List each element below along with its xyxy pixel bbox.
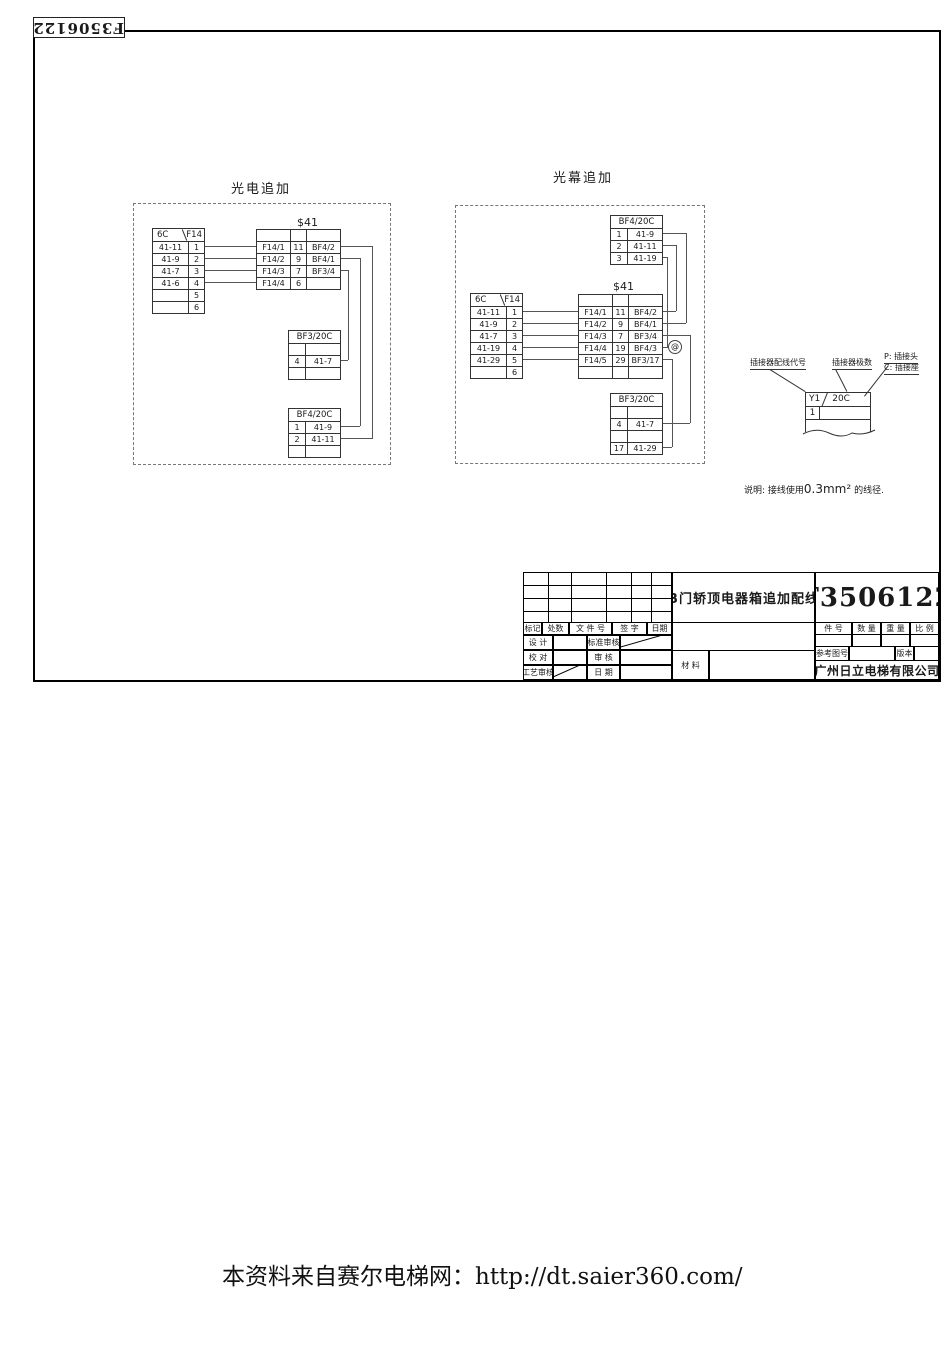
connector-table-6c-f14: 6C F14 41-11141-9241-7341-6456 (152, 228, 205, 314)
tb-label-material: 材 料 (672, 650, 709, 680)
table-cell: F14/3 (257, 266, 291, 278)
tb-label-date2: 日 期 (587, 665, 620, 680)
table-row: F14/29BF4/1 (257, 254, 341, 266)
table-cell (613, 295, 629, 307)
table-cell: 4 (611, 419, 628, 431)
revision-grid (523, 572, 672, 623)
table-cell: 4 (289, 356, 306, 368)
corner-drawing-number: F3506122 (33, 17, 125, 38)
connector-table-header: 6C F14 (153, 229, 205, 242)
cable-name: F14 (186, 229, 202, 241)
connector-table-title: BF3/20C (289, 331, 341, 344)
table-cell: 2 (611, 241, 628, 253)
table-row: F14/29BF4/1 (579, 319, 663, 331)
note-prefix: 说明: 接线使用 (744, 486, 804, 496)
table-cell: 41-7 (306, 356, 341, 368)
tb-label-version: 版本 (895, 646, 914, 661)
light-curtain-diagram-title: 光幕追加 (553, 167, 613, 186)
table-row (611, 431, 663, 443)
wire-segment (690, 335, 691, 423)
tb-cell-diagonal (620, 635, 672, 650)
table-cell: 41-7 (153, 266, 189, 278)
table-cell: 41-7 (628, 419, 663, 431)
junction-marker: @ (668, 340, 682, 354)
connector-table-bf4: BF4/20C 141-9241-11341-19 (610, 215, 663, 265)
table-cell: 19 (613, 343, 629, 355)
table-cell: F14/1 (257, 242, 291, 254)
table-cell: 5 (189, 290, 205, 302)
tb-label-count: 处数 (542, 622, 569, 635)
table-cell (306, 344, 341, 356)
wire-segment (522, 359, 578, 360)
cable-name: F14 (504, 294, 520, 306)
table-cell (289, 446, 306, 458)
table-cell (307, 230, 341, 242)
table-row: F14/111BF4/2 (257, 242, 341, 254)
tb-cell-empty (849, 646, 895, 661)
table-cell: 6 (291, 278, 307, 290)
watermark-text: 本资料来自赛尔电梯网：http://dt.saier360.com/ (222, 1257, 743, 1291)
wire-segment (662, 447, 672, 448)
connector-table-header: 6C F14 (471, 294, 523, 307)
tb-cell-empty (620, 665, 672, 680)
legend-sample-pin: 1 (805, 406, 820, 420)
wire-segment (340, 246, 372, 247)
wire-segment (522, 335, 578, 336)
table-row: F14/419BF4/3 (579, 343, 663, 355)
table-cell: 41-19 (628, 253, 663, 265)
wire-segment (686, 233, 687, 323)
table-row: F14/529BF3/17 (579, 355, 663, 367)
wire-segment (204, 282, 256, 283)
wire-segment (662, 359, 672, 360)
table-cell: BF4/2 (629, 307, 663, 319)
table-row: 41-64 (153, 278, 205, 290)
tb-cell-empty (553, 650, 587, 665)
table-cell: 1 (289, 422, 306, 434)
company-name: 广州日立电梯有限公司 (815, 660, 939, 680)
table-row (257, 230, 341, 242)
table-row: 341-19 (611, 253, 663, 265)
table-cell: 1 (507, 307, 523, 319)
table-row: 41-111 (471, 307, 523, 319)
tb-label-ref-drawing: 参考图号 (815, 646, 849, 661)
terminal-strip-label: $41 (297, 216, 318, 229)
table-cell: 3 (189, 266, 205, 278)
table-row (289, 368, 341, 380)
wire-segment (662, 245, 676, 246)
table-cell: 4 (507, 343, 523, 355)
table-cell: 9 (291, 254, 307, 266)
connector-table-title: BF3/20C (611, 394, 663, 407)
table-cell: F14/4 (579, 343, 613, 355)
table-cell: 6 (507, 367, 523, 379)
photoelectric-diagram-title: 光电追加 (231, 178, 291, 197)
legend-sample-poles: 20C (832, 393, 850, 406)
table-cell: 41-7 (471, 331, 507, 343)
wire-segment (662, 311, 676, 312)
table-cell (611, 431, 628, 443)
tb-label-mark: 标记 (523, 622, 542, 635)
table-cell: BF3/4 (307, 266, 341, 278)
wire-segment (662, 323, 686, 324)
table-row: F14/111BF4/2 (579, 307, 663, 319)
grid-line (524, 585, 671, 586)
table-cell: 2 (189, 254, 205, 266)
wire-segment (360, 258, 361, 426)
table-row: 441-7 (289, 356, 341, 368)
table-cell (153, 302, 189, 314)
table-cell: 4 (189, 278, 205, 290)
wire-segment (672, 359, 673, 447)
tb-label-file-no: 文 件 号 (569, 622, 612, 635)
table-row: F14/37BF3/4 (579, 331, 663, 343)
table-cell (611, 407, 628, 419)
wire-segment (662, 233, 686, 234)
wire-segment (667, 257, 668, 347)
table-cell (628, 431, 663, 443)
tb-label-standard-check: 标准审核 (587, 635, 620, 650)
connector-name: 6C (475, 294, 486, 306)
wire-segment (662, 423, 690, 424)
wiring-note: 说明: 接线使用0.3mm² 的线径. (744, 482, 884, 496)
table-row: 41-92 (153, 254, 205, 266)
legend-pole-count-label: 插接器极数 (832, 357, 872, 370)
legend-wiring-code-label: 插接器配线代号 (750, 357, 806, 370)
grid-line (524, 598, 671, 599)
tb-cell-empty (553, 635, 587, 650)
table-row: 1741-29 (611, 443, 663, 455)
table-cell: 41-11 (628, 241, 663, 253)
table-cell: F14/3 (579, 331, 613, 343)
table-row (611, 407, 663, 419)
wire-segment (340, 270, 348, 271)
table-cell (289, 368, 306, 380)
table-row: 6 (471, 367, 523, 379)
wire-segment (204, 258, 256, 259)
table-cell: F14/5 (579, 355, 613, 367)
connector-table-title: BF4/20C (289, 409, 341, 422)
table-cell: 11 (291, 242, 307, 254)
tb-label-check: 审 核 (587, 650, 620, 665)
wire-segment (522, 311, 578, 312)
diagonal-line (553, 665, 587, 678)
legend-sample-value-cell (819, 406, 871, 420)
table-cell (629, 367, 663, 379)
tb-cell-diagonal (553, 665, 587, 680)
table-row (579, 367, 663, 379)
connector-table-6c-f14: 6C F14 41-11141-9241-7341-19441-2956 (470, 293, 523, 379)
torn-edge-squiggle (800, 426, 878, 442)
grid-line (524, 611, 671, 612)
wire-segment (204, 270, 256, 271)
table-cell (613, 367, 629, 379)
table-cell: F14/4 (257, 278, 291, 290)
table-cell: 41-11 (153, 242, 189, 254)
tb-cell-empty (672, 622, 815, 651)
table-cell: F14/1 (579, 307, 613, 319)
legend-sample-code: Y1 (809, 393, 820, 406)
terminal-table-s41: F14/111BF4/2F14/29BF4/1F14/37BF3/4F14/46 (256, 229, 341, 290)
connector-table-title: BF4/20C (611, 216, 663, 229)
table-cell: 7 (613, 331, 629, 343)
table-cell: 1 (189, 242, 205, 254)
table-cell: F14/2 (579, 319, 613, 331)
drawing-sheet: F3506122 光电追加 6C F14 41-11141-9241-7341-… (0, 0, 950, 1345)
table-cell: 41-9 (306, 422, 341, 434)
table-cell: 41-11 (471, 307, 507, 319)
connector-name: 6C (157, 229, 168, 241)
table-row: 6 (153, 302, 205, 314)
table-cell: BF4/3 (629, 343, 663, 355)
wire-segment (348, 270, 349, 360)
table-row: 41-295 (471, 355, 523, 367)
table-cell (291, 230, 307, 242)
table-cell: 3 (611, 253, 628, 265)
note-suffix: 的线径. (854, 486, 884, 496)
diagonal-line (620, 635, 672, 648)
table-cell: 29 (613, 355, 629, 367)
table-cell: 5 (507, 355, 523, 367)
drawing-number: F3506122 (815, 572, 939, 623)
table-row: 5 (153, 290, 205, 302)
table-cell: 2 (507, 319, 523, 331)
wire-segment (372, 246, 373, 439)
table-row: 141-9 (611, 229, 663, 241)
table-cell (153, 290, 189, 302)
table-row (289, 446, 341, 458)
table-cell: 41-9 (153, 254, 189, 266)
table-row: F14/46 (257, 278, 341, 290)
table-cell: 3 (507, 331, 523, 343)
table-cell (579, 295, 613, 307)
table-row: 441-7 (611, 419, 663, 431)
table-cell (306, 368, 341, 380)
table-cell: 9 (613, 319, 629, 331)
table-cell: BF4/1 (629, 319, 663, 331)
wire-segment (340, 258, 360, 259)
table-cell (471, 367, 507, 379)
table-row: 41-194 (471, 343, 523, 355)
table-cell (289, 344, 306, 356)
table-row: 41-92 (471, 319, 523, 331)
note-wire-size: 0.3mm² (804, 482, 851, 496)
table-cell: BF4/2 (307, 242, 341, 254)
table-cell: 41-9 (471, 319, 507, 331)
table-row: 241-11 (289, 434, 341, 446)
connector-table-bf3: BF3/20C 441-7 (288, 330, 341, 380)
table-cell: 41-6 (153, 278, 189, 290)
table-cell: 7 (291, 266, 307, 278)
table-row (289, 344, 341, 356)
drawing-title: B门轿顶电器箱追加配线 (672, 572, 815, 623)
table-cell: 1 (611, 229, 628, 241)
legend-socket-label: C: 插接座 (884, 362, 919, 375)
table-row: 141-9 (289, 422, 341, 434)
wire-segment (204, 246, 256, 247)
tb-label-signature: 签 字 (612, 622, 647, 635)
tb-label-design: 设 计 (523, 635, 553, 650)
connector-table-bf4: BF4/20C 141-9241-11 (288, 408, 341, 458)
wire-segment (340, 360, 348, 361)
table-row: 41-111 (153, 242, 205, 254)
table-cell: 11 (613, 307, 629, 319)
terminal-table-s41: F14/111BF4/2F14/29BF4/1F14/37BF3/4F14/41… (578, 294, 663, 379)
table-cell: BF4/1 (307, 254, 341, 266)
table-cell: 41-29 (471, 355, 507, 367)
tb-label-proofread: 校 对 (523, 650, 553, 665)
table-row: F14/37BF3/4 (257, 266, 341, 278)
connector-table-bf3: BF3/20C 441-71741-29 (610, 393, 663, 455)
wire-segment (522, 347, 578, 348)
tb-label-process-check: 工艺审核 (523, 665, 553, 680)
table-cell: BF3/17 (629, 355, 663, 367)
table-cell: 41-9 (628, 229, 663, 241)
table-cell: F14/2 (257, 254, 291, 266)
table-cell (629, 295, 663, 307)
table-row: 41-73 (153, 266, 205, 278)
table-cell (307, 278, 341, 290)
table-row: 241-11 (611, 241, 663, 253)
table-cell (628, 407, 663, 419)
table-row: 41-73 (471, 331, 523, 343)
table-cell: 41-11 (306, 434, 341, 446)
table-cell: 6 (189, 302, 205, 314)
table-cell (257, 230, 291, 242)
table-cell: 41-19 (471, 343, 507, 355)
wire-segment (662, 335, 690, 336)
tb-cell-empty (914, 646, 939, 661)
legend-sample-header: Y1 20C (805, 392, 871, 407)
tb-cell-empty (620, 650, 672, 665)
tb-cell-empty (709, 650, 815, 680)
wire-segment (676, 245, 677, 311)
table-cell: 17 (611, 443, 628, 455)
table-cell (579, 367, 613, 379)
wire-segment (522, 323, 578, 324)
table-row (579, 295, 663, 307)
table-cell: 2 (289, 434, 306, 446)
table-cell (306, 446, 341, 458)
table-cell: BF3/4 (629, 331, 663, 343)
terminal-strip-label: $41 (613, 280, 634, 293)
wire-segment (340, 438, 372, 439)
table-cell: 41-29 (628, 443, 663, 455)
wire-segment (340, 426, 360, 427)
tb-label-date: 日期 (647, 622, 672, 635)
